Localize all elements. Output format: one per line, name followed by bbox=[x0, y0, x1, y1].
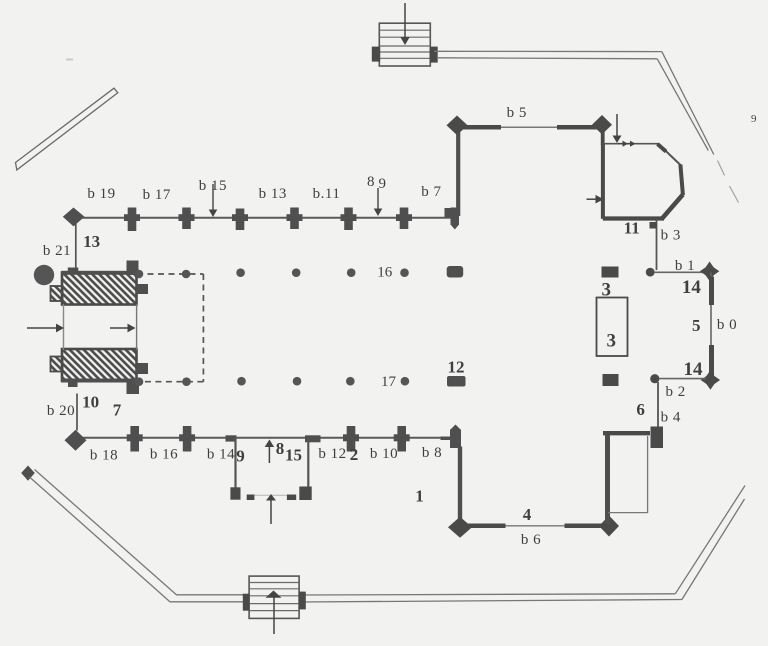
svg-text:b 7: b 7 bbox=[421, 184, 441, 200]
svg-text:15: 15 bbox=[285, 446, 302, 465]
svg-text:9: 9 bbox=[236, 447, 245, 466]
svg-text:2: 2 bbox=[350, 445, 359, 464]
svg-text:5: 5 bbox=[692, 316, 701, 335]
svg-text:b 16: b 16 bbox=[150, 447, 178, 463]
svg-text:b 6: b 6 bbox=[521, 532, 541, 548]
svg-text:b 5: b 5 bbox=[507, 105, 527, 121]
svg-text:b 21: b 21 bbox=[43, 243, 71, 259]
svg-text:13: 13 bbox=[83, 232, 100, 251]
svg-text:b 4: b 4 bbox=[661, 410, 681, 426]
svg-text:8: 8 bbox=[367, 174, 375, 190]
svg-text:8: 8 bbox=[276, 439, 285, 458]
svg-text:6: 6 bbox=[636, 400, 645, 419]
svg-text:b 0: b 0 bbox=[717, 317, 737, 333]
svg-text:9: 9 bbox=[379, 176, 387, 192]
svg-text:b 15: b 15 bbox=[199, 178, 227, 194]
svg-text:3: 3 bbox=[607, 331, 617, 352]
svg-text:14: 14 bbox=[684, 359, 704, 380]
svg-text:16: 16 bbox=[377, 265, 393, 281]
svg-text:b 19: b 19 bbox=[87, 186, 115, 202]
svg-text:b 20: b 20 bbox=[47, 403, 75, 419]
svg-text:b 2: b 2 bbox=[665, 384, 685, 400]
svg-text:b 12: b 12 bbox=[318, 446, 346, 462]
svg-text:b 1: b 1 bbox=[675, 258, 695, 274]
svg-text:7: 7 bbox=[113, 401, 122, 420]
svg-text:b 3: b 3 bbox=[661, 228, 681, 244]
svg-text:b 18: b 18 bbox=[90, 448, 118, 464]
svg-text:b 13: b 13 bbox=[259, 186, 287, 202]
svg-text:14: 14 bbox=[682, 277, 702, 298]
svg-text:b 14: b 14 bbox=[207, 447, 235, 463]
svg-text:b 17: b 17 bbox=[143, 187, 171, 203]
svg-text:17: 17 bbox=[381, 374, 397, 390]
svg-text:10: 10 bbox=[82, 393, 99, 412]
svg-text:11: 11 bbox=[624, 219, 640, 238]
svg-text:1: 1 bbox=[415, 487, 424, 506]
svg-text:3: 3 bbox=[601, 280, 611, 301]
svg-text:b.11: b.11 bbox=[313, 186, 341, 202]
svg-text:4: 4 bbox=[523, 505, 532, 524]
svg-text:b 8: b 8 bbox=[422, 445, 442, 461]
svg-text:b 10: b 10 bbox=[370, 446, 398, 462]
svg-text:9: 9 bbox=[751, 113, 757, 125]
svg-text:12: 12 bbox=[448, 358, 465, 377]
